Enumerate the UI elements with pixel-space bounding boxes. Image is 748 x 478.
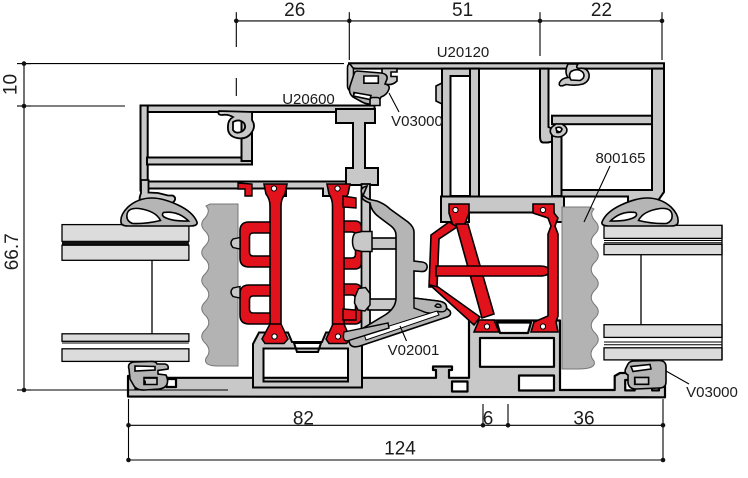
svg-text:V02001: V02001 xyxy=(388,342,440,359)
svg-text:66.7: 66.7 xyxy=(2,233,23,270)
svg-text:10: 10 xyxy=(1,74,22,95)
svg-text:51: 51 xyxy=(452,0,473,21)
svg-text:800165: 800165 xyxy=(595,150,645,167)
svg-text:6: 6 xyxy=(483,409,494,430)
svg-text:V03000: V03000 xyxy=(391,113,443,130)
svg-text:26: 26 xyxy=(284,0,305,21)
svg-text:36: 36 xyxy=(573,409,594,430)
svg-text:82: 82 xyxy=(293,409,314,430)
svg-text:22: 22 xyxy=(591,0,612,21)
svg-text:124: 124 xyxy=(384,438,416,459)
svg-text:V03000: V03000 xyxy=(686,384,738,401)
svg-text:U20600: U20600 xyxy=(282,91,335,108)
svg-text:U20120: U20120 xyxy=(437,44,490,61)
